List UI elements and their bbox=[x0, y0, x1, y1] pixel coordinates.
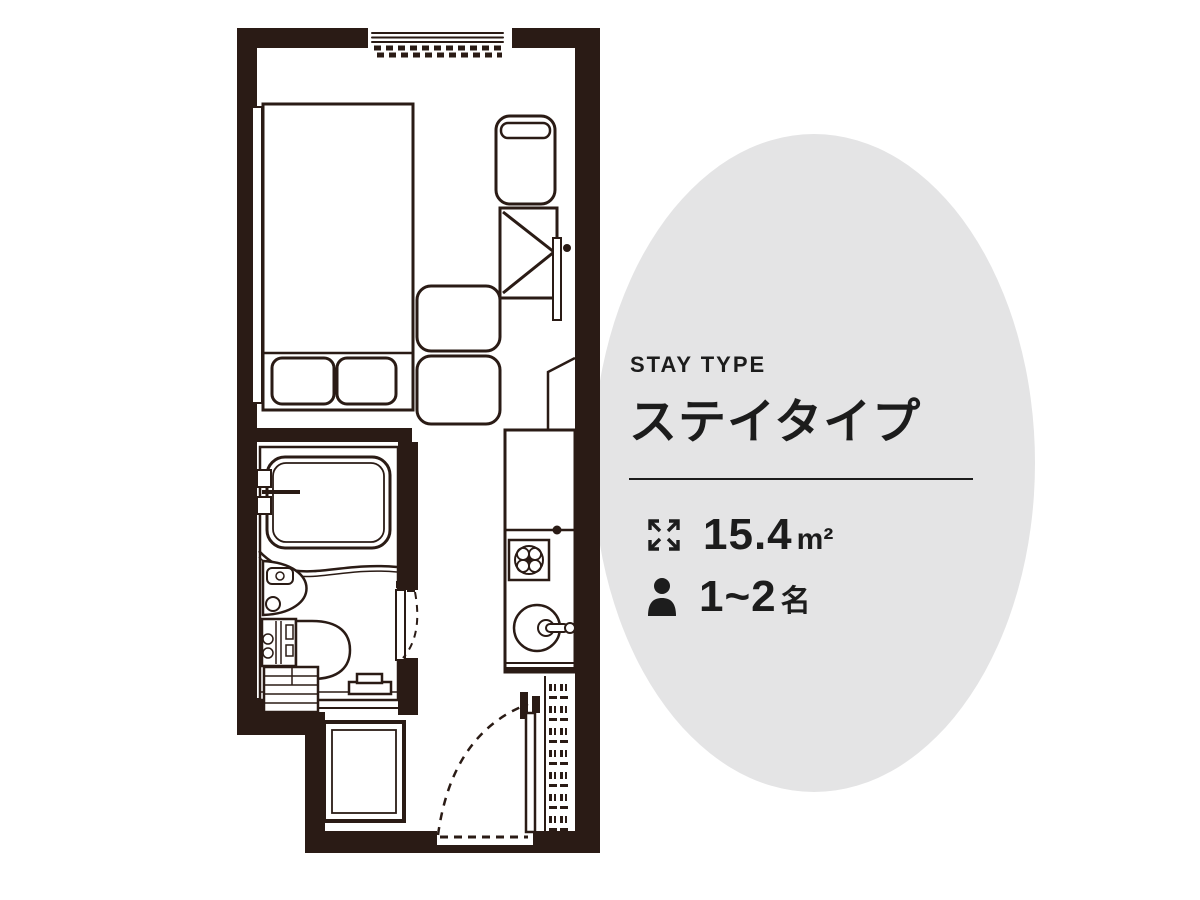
area-row: 15.4 m² bbox=[629, 515, 833, 555]
stove bbox=[509, 540, 549, 580]
door-leaf bbox=[526, 713, 535, 832]
pillow bbox=[337, 358, 396, 404]
bathroom bbox=[257, 447, 417, 712]
wall-step bbox=[548, 358, 575, 430]
entry-door bbox=[438, 692, 540, 837]
bathtub bbox=[257, 457, 390, 548]
bed bbox=[252, 104, 413, 410]
pillow bbox=[272, 358, 334, 404]
stay-type-label: STAY TYPE bbox=[630, 352, 766, 378]
capacity-unit: 名 bbox=[781, 587, 811, 617]
luggage-rack bbox=[500, 208, 557, 298]
capacity-row: 1~2 名 bbox=[629, 575, 811, 619]
door-swing-arc bbox=[438, 704, 528, 835]
shelf-rack bbox=[264, 667, 318, 712]
bathroom-door bbox=[396, 581, 417, 660]
area-value: 15.4 bbox=[703, 513, 793, 557]
ottoman bbox=[417, 286, 500, 351]
window bbox=[372, 33, 503, 55]
expand-icon bbox=[645, 516, 683, 554]
person-icon bbox=[645, 576, 679, 618]
wall-mirror bbox=[553, 238, 571, 320]
divider-line bbox=[629, 478, 973, 480]
ottoman bbox=[417, 356, 500, 424]
armchair bbox=[496, 116, 555, 204]
door-knob bbox=[563, 244, 571, 252]
stay-type-title: ステイタイプ bbox=[629, 382, 921, 452]
capacity-value: 1~2 bbox=[699, 575, 777, 619]
cabinet-knob bbox=[553, 526, 562, 535]
info-panel: STAY TYPE ステイタイプ 15.4 m² bbox=[629, 338, 1039, 648]
entry-closet bbox=[545, 676, 570, 848]
area-unit: m² bbox=[797, 525, 834, 555]
kitchenette bbox=[505, 430, 575, 672]
page: STAY TYPE ステイタイプ 15.4 m² bbox=[0, 0, 1200, 900]
entry-storage-box bbox=[324, 722, 404, 821]
door-leaf bbox=[396, 590, 405, 660]
